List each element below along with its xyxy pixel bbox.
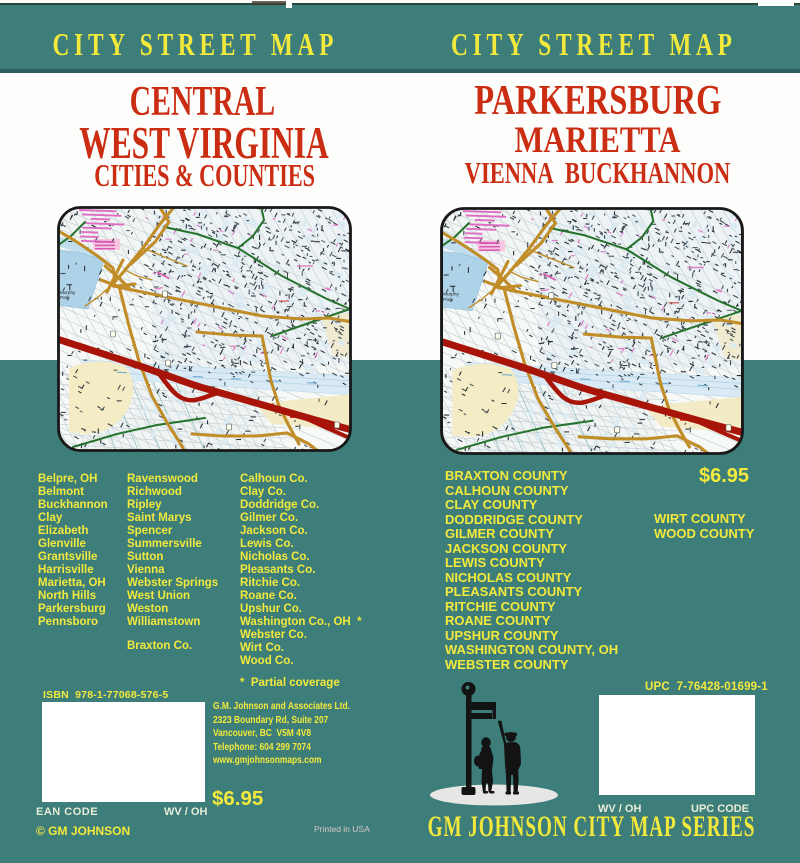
svg-text:Park: Park bbox=[443, 297, 453, 302]
svg-text:Park: Park bbox=[60, 295, 70, 300]
